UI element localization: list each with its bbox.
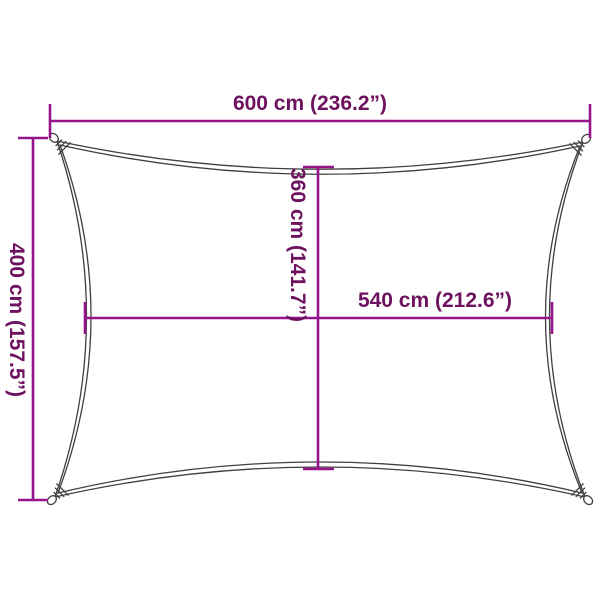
corner-ring-bottom-right — [572, 484, 598, 510]
top-width-label: 600 cm (236.2”) — [40, 92, 580, 116]
corner-ring-bottom-left — [42, 484, 68, 510]
shade-sail-dimension-diagram: 600 cm (236.2”) 400 cm (157.5”) 360 cm (… — [0, 0, 600, 600]
center-height-label: 360 cm (141.7”) — [285, 168, 309, 322]
left-height-label: 400 cm (157.5”) — [4, 243, 28, 397]
corner-ring-top-right — [570, 129, 596, 155]
corner-ring-top-left — [44, 128, 70, 154]
center-width-label: 540 cm (212.6”) — [318, 289, 552, 313]
